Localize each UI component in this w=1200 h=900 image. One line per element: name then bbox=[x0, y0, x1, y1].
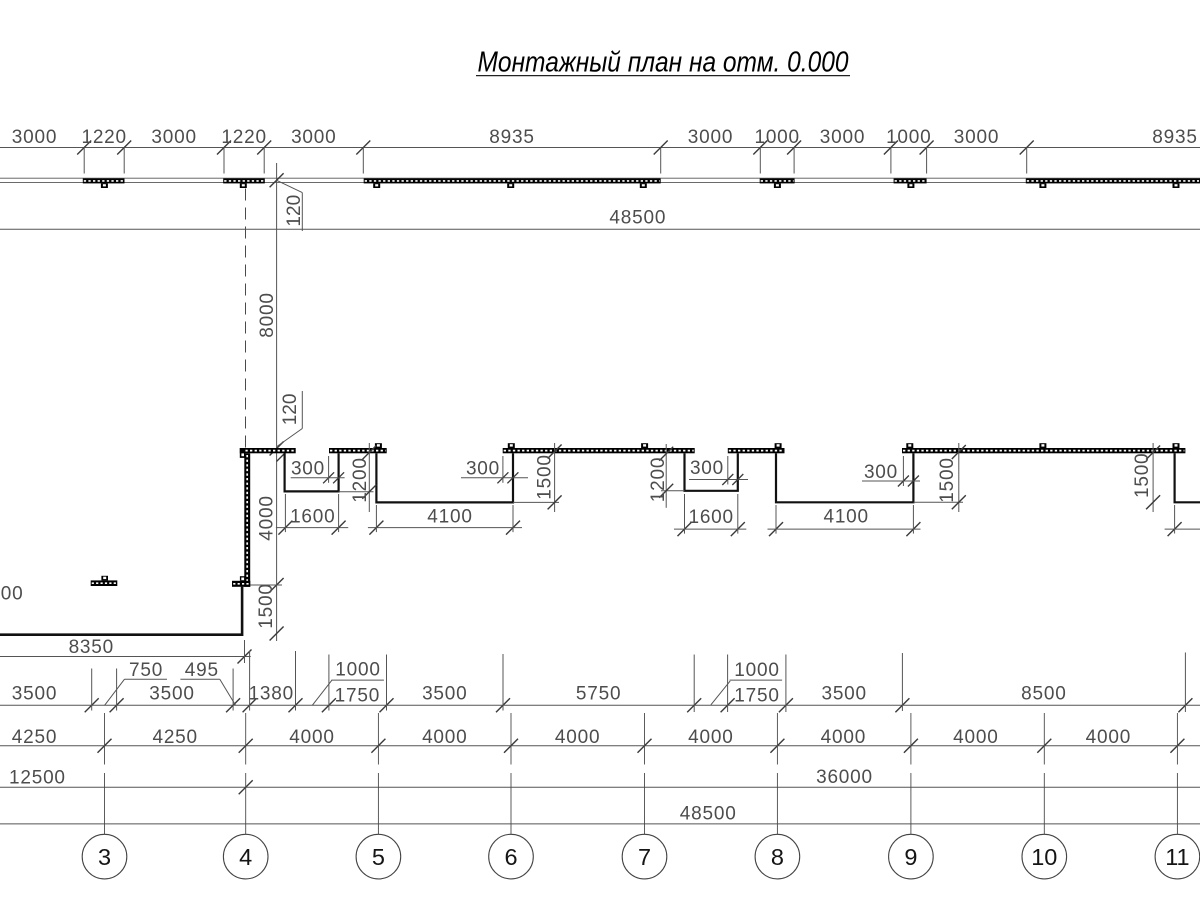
svg-text:1000: 1000 bbox=[754, 127, 799, 148]
svg-text:495: 495 bbox=[185, 660, 219, 681]
svg-text:1000: 1000 bbox=[886, 127, 931, 148]
svg-text:8350: 8350 bbox=[69, 637, 114, 658]
svg-text:1000: 1000 bbox=[734, 660, 779, 681]
svg-text:3500: 3500 bbox=[422, 683, 467, 704]
svg-text:1220: 1220 bbox=[221, 127, 266, 148]
svg-text:1500: 1500 bbox=[1132, 453, 1153, 498]
svg-text:3: 3 bbox=[98, 844, 111, 870]
svg-text:4250: 4250 bbox=[12, 727, 57, 748]
svg-text:4000: 4000 bbox=[555, 727, 600, 748]
svg-text:8: 8 bbox=[771, 844, 784, 870]
svg-text:300: 300 bbox=[291, 459, 325, 480]
svg-text:1500: 1500 bbox=[256, 583, 277, 628]
svg-text:4: 4 bbox=[239, 844, 252, 870]
svg-text:3500: 3500 bbox=[12, 683, 57, 704]
svg-text:3000: 3000 bbox=[151, 127, 196, 148]
svg-text:8500: 8500 bbox=[1021, 683, 1066, 704]
svg-text:8000: 8000 bbox=[257, 292, 278, 337]
svg-text:4000: 4000 bbox=[953, 727, 998, 748]
svg-text:1500: 1500 bbox=[535, 454, 556, 499]
svg-text:3000: 3000 bbox=[291, 127, 336, 148]
svg-text:4000: 4000 bbox=[1086, 727, 1131, 748]
svg-text:300: 300 bbox=[864, 462, 898, 483]
svg-text:11: 11 bbox=[1165, 844, 1189, 870]
svg-text:3000: 3000 bbox=[12, 127, 57, 148]
svg-text:3500: 3500 bbox=[821, 683, 866, 704]
svg-text:10: 10 bbox=[1031, 844, 1057, 870]
svg-text:8935: 8935 bbox=[489, 127, 534, 148]
svg-text:1200: 1200 bbox=[350, 457, 371, 502]
svg-text:1750: 1750 bbox=[734, 686, 779, 707]
svg-text:1600: 1600 bbox=[688, 507, 733, 528]
svg-text:4100: 4100 bbox=[823, 507, 868, 528]
svg-text:4000: 4000 bbox=[821, 727, 866, 748]
svg-text:9: 9 bbox=[904, 844, 917, 870]
svg-text:Монтажный план на отм. 0.000: Монтажный план на отм. 0.000 bbox=[478, 47, 849, 79]
svg-text:6: 6 bbox=[504, 844, 517, 870]
svg-text:3000: 3000 bbox=[954, 127, 999, 148]
svg-text:48500: 48500 bbox=[609, 208, 666, 229]
svg-text:120: 120 bbox=[284, 195, 305, 227]
svg-text:3000: 3000 bbox=[820, 127, 865, 148]
svg-text:3500: 3500 bbox=[149, 683, 194, 704]
svg-text:12500: 12500 bbox=[9, 767, 66, 788]
svg-text:1220: 1220 bbox=[81, 127, 126, 148]
svg-text:7: 7 bbox=[638, 844, 651, 870]
svg-text:300: 300 bbox=[466, 459, 500, 480]
svg-text:1600: 1600 bbox=[290, 507, 335, 528]
svg-text:1750: 1750 bbox=[335, 686, 380, 707]
svg-text:1500: 1500 bbox=[937, 457, 958, 502]
svg-text:120: 120 bbox=[280, 394, 301, 426]
svg-text:4250: 4250 bbox=[152, 727, 197, 748]
svg-text:4100: 4100 bbox=[427, 507, 472, 528]
svg-text:3000: 3000 bbox=[688, 127, 733, 148]
svg-text:48500: 48500 bbox=[680, 804, 737, 825]
svg-text:5: 5 bbox=[372, 844, 385, 870]
svg-text:36000: 36000 bbox=[816, 767, 873, 788]
svg-text:1200: 1200 bbox=[648, 457, 669, 502]
svg-text:00: 00 bbox=[1, 584, 24, 605]
svg-text:4000: 4000 bbox=[257, 495, 278, 540]
svg-text:1000: 1000 bbox=[335, 659, 380, 680]
svg-text:1380: 1380 bbox=[249, 683, 294, 704]
svg-text:4000: 4000 bbox=[289, 727, 334, 748]
svg-text:8935: 8935 bbox=[1152, 127, 1197, 148]
svg-text:300: 300 bbox=[690, 458, 724, 479]
svg-text:4000: 4000 bbox=[688, 727, 733, 748]
svg-text:750: 750 bbox=[129, 660, 163, 681]
svg-text:4000: 4000 bbox=[422, 727, 467, 748]
svg-text:5750: 5750 bbox=[576, 683, 621, 704]
